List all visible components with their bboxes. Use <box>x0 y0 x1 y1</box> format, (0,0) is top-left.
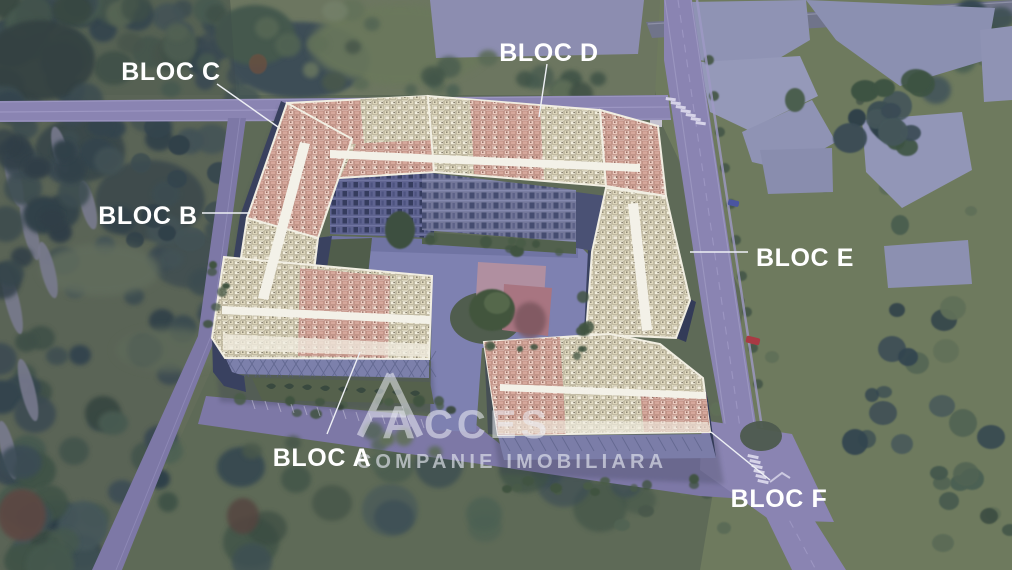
svg-text:A: A <box>382 396 415 448</box>
svg-text:BLOC A: BLOC A <box>273 444 372 472</box>
svg-text:BLOC E: BLOC E <box>756 244 854 272</box>
svg-text:COMPANIE IMOBILIARA: COMPANIE IMOBILIARA <box>357 451 668 473</box>
svg-text:BLOC F: BLOC F <box>731 485 828 513</box>
svg-text:BLOC B: BLOC B <box>98 202 197 230</box>
svg-text:BLOC C: BLOC C <box>121 58 220 86</box>
svg-text:CCES: CCES <box>424 403 551 447</box>
svg-text:BLOC D: BLOC D <box>499 39 598 67</box>
